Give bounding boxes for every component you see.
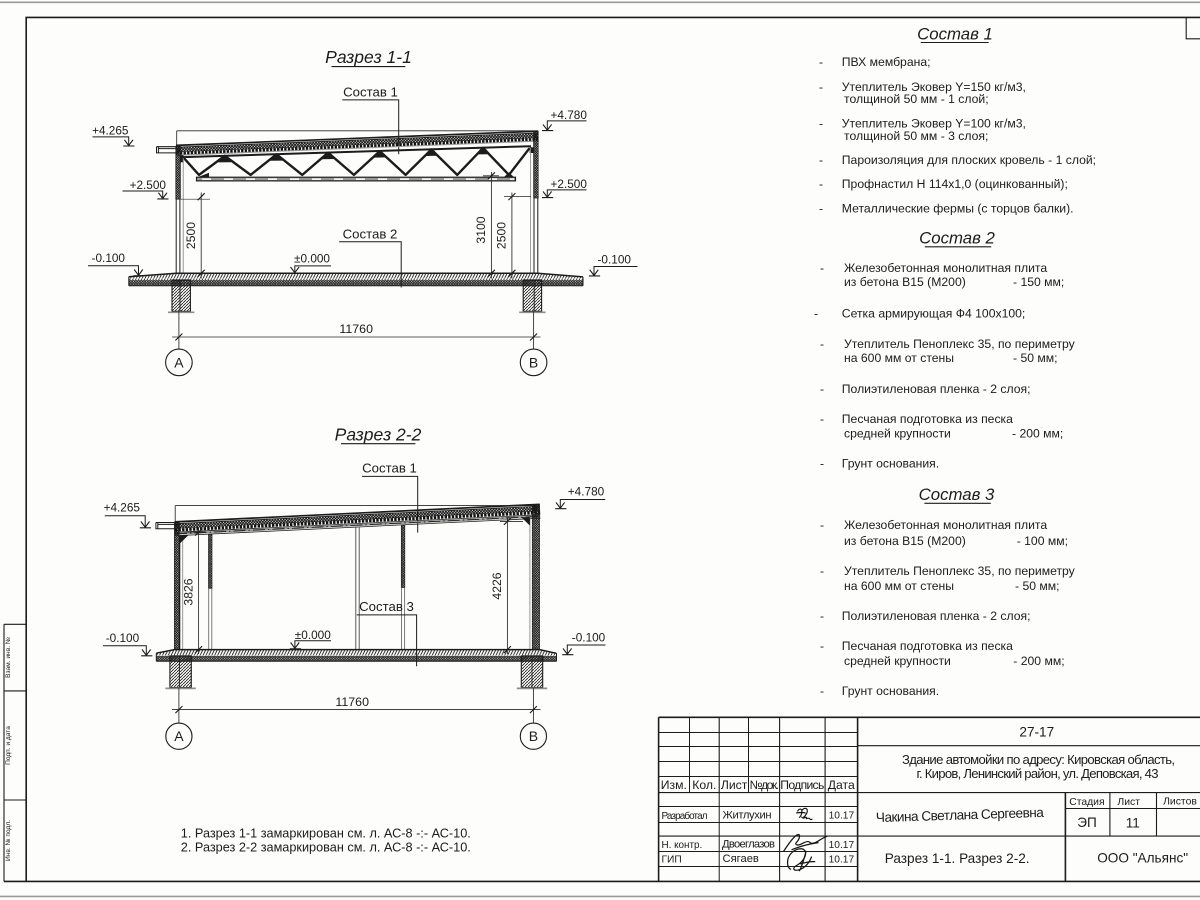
svg-text:- 200 мм;: - 200 мм; — [1013, 654, 1064, 668]
svg-text:Полиэтиленовая пленка - 2 слоя: Полиэтиленовая пленка - 2 слоя; — [842, 609, 1031, 623]
svg-text:В: В — [529, 354, 538, 370]
svg-text:-: - — [820, 337, 824, 351]
svg-text:Лист: Лист — [721, 778, 748, 792]
svg-text:Дата: Дата — [828, 778, 855, 792]
svg-text:2500: 2500 — [184, 222, 198, 249]
svg-text:г. Киров, Ленинский район, ул.: г. Киров, Ленинский район, ул. Деповская… — [917, 766, 1159, 781]
svg-text:Полиэтиленовая пленка - 2 слоя: Полиэтиленовая пленка - 2 слоя; — [842, 382, 1031, 396]
svg-text:Сягаев: Сягаев — [723, 853, 759, 865]
svg-text:11760: 11760 — [335, 695, 369, 709]
svg-text:Двоеглазов: Двоеглазов — [722, 839, 775, 851]
svg-text:Состав 3: Состав 3 — [919, 485, 995, 504]
svg-text:Утеплитель Пеноплекс 35, по пе: Утеплитель Пеноплекс 35, по периметру — [844, 337, 1076, 351]
svg-text:- 200 мм;: - 200 мм; — [1012, 427, 1063, 441]
svg-text:- 150 мм;: - 150 мм; — [1013, 275, 1064, 289]
svg-text:Грунт основания.: Грунт основания. — [842, 457, 939, 471]
svg-text:+4.780: +4.780 — [568, 485, 605, 499]
svg-text:средней крупности: средней крупности — [844, 427, 951, 441]
svg-text:2. Разрез 2-2 замаркирован см.: 2. Разрез 2-2 замаркирован см. л. АС-8 -… — [181, 840, 471, 854]
svg-text:Изм.: Изм. — [661, 778, 687, 792]
svg-text:11760: 11760 — [339, 322, 373, 336]
svg-text:-: - — [820, 684, 824, 698]
svg-text:- 50 мм;: - 50 мм; — [1015, 579, 1060, 593]
svg-text:-: - — [819, 80, 823, 94]
svg-text:толщиной 50 мм - 3 слоя;: толщиной 50 мм - 3 слоя; — [844, 129, 988, 143]
svg-text:Разработал: Разработал — [662, 811, 708, 822]
svg-text:-0.100: -0.100 — [598, 252, 632, 266]
svg-text:Разрез 1-1. Разрез 2-2.: Разрез 1-1. Разрез 2-2. — [885, 851, 1030, 866]
svg-text:Состав 2: Состав 2 — [919, 229, 995, 248]
svg-text:- 100 мм;: - 100 мм; — [1017, 534, 1068, 548]
svg-text:-: - — [820, 457, 824, 471]
svg-text:-: - — [819, 55, 823, 69]
svg-text:Н. контр.: Н. контр. — [662, 840, 703, 851]
svg-text:№док.: №док. — [750, 778, 780, 792]
svg-text:10.17: 10.17 — [829, 840, 855, 851]
svg-text:10.17: 10.17 — [829, 854, 855, 865]
svg-text:Грунт основания.: Грунт основания. — [842, 684, 939, 698]
svg-text:-: - — [820, 382, 824, 396]
svg-text:на 600 мм от стены: на 600 мм от стены — [844, 579, 954, 593]
svg-text:Металлические фермы (с торцов: Металлические фермы (с торцов балки). — [842, 202, 1074, 216]
svg-text:ГИП: ГИП — [662, 855, 682, 866]
svg-text:2500: 2500 — [495, 222, 509, 249]
svg-text:27-17: 27-17 — [1019, 724, 1054, 739]
svg-text:ПВХ мембрана;: ПВХ мембрана; — [842, 55, 931, 69]
svg-text:Состав 2: Состав 2 — [343, 227, 398, 242]
svg-text:-: - — [819, 177, 823, 191]
svg-text:Лист: Лист — [1117, 797, 1140, 808]
svg-text:-: - — [820, 609, 824, 623]
svg-text:из бетона В15 (М200): из бетона В15 (М200) — [844, 275, 966, 289]
svg-text:-0.100: -0.100 — [572, 631, 606, 645]
svg-text:Состав 1: Состав 1 — [917, 24, 993, 43]
svg-text:А: А — [174, 354, 184, 370]
svg-text:Подп. и дата: Подп. и дата — [5, 726, 12, 765]
svg-text:11: 11 — [1126, 816, 1140, 831]
svg-text:-: - — [820, 564, 824, 578]
svg-text:на 600 мм от стены: на 600 мм от стены — [844, 351, 954, 365]
svg-text:из бетона В15 (М200): из бетона В15 (М200) — [844, 534, 966, 548]
svg-text:Песчаная подготовка из песка: Песчаная подготовка из песка — [842, 639, 1013, 653]
svg-text:Подпись: Подпись — [780, 778, 824, 792]
svg-text:+2.500: +2.500 — [130, 178, 167, 192]
svg-text:Здание автомойки по адресу: Ки: Здание автомойки по адресу: Кировская об… — [902, 752, 1175, 767]
svg-text:Житлухин: Житлухин — [723, 810, 772, 822]
svg-text:-: - — [814, 307, 818, 321]
svg-text:средней крупности: средней крупности — [844, 654, 951, 668]
svg-text:+4.265: +4.265 — [92, 123, 129, 137]
svg-text:ЭП: ЭП — [1077, 815, 1097, 830]
svg-text:-: - — [819, 153, 823, 167]
svg-text:Кол.: Кол. — [692, 778, 716, 792]
svg-text:Разрез 1-1: Разрез 1-1 — [325, 47, 412, 67]
svg-text:В: В — [529, 728, 538, 744]
svg-text:толщиной 50 мм - 1 слой;: толщиной 50 мм - 1 слой; — [844, 92, 989, 106]
svg-text:-: - — [820, 639, 824, 653]
svg-text:-: - — [820, 518, 824, 532]
svg-text:±0.000: ±0.000 — [295, 628, 331, 642]
svg-text:1. Разрез 1-1 замаркирован см.: 1. Разрез 1-1 замаркирован см. л. АС-8 -… — [181, 826, 471, 840]
svg-text:-: - — [820, 261, 824, 275]
svg-text:+4.780: +4.780 — [551, 108, 588, 122]
svg-text:ООО "Альянс": ООО "Альянс" — [1097, 850, 1188, 865]
svg-text:-: - — [820, 412, 824, 426]
svg-text:-: - — [819, 117, 823, 131]
svg-text:Состав 1: Состав 1 — [362, 461, 417, 476]
svg-text:-0.100: -0.100 — [92, 251, 126, 265]
svg-text:Профнастил Н 114х1,0 (оцинкова: Профнастил Н 114х1,0 (оцинкованный); — [842, 177, 1068, 191]
svg-text:4226: 4226 — [490, 572, 504, 599]
svg-text:Пароизоляция для плоских крове: Пароизоляция для плоских кровель - 1 сло… — [842, 153, 1096, 167]
svg-text:±0.000: ±0.000 — [294, 251, 330, 265]
svg-text:+4.265: +4.265 — [104, 500, 141, 514]
svg-text:Листов: Листов — [1163, 797, 1197, 808]
svg-text:Состав 3: Состав 3 — [359, 599, 414, 614]
svg-text:- 50 мм;: - 50 мм; — [1013, 351, 1058, 365]
svg-text:3100: 3100 — [474, 216, 488, 243]
svg-text:Инв. № подл.: Инв. № подл. — [5, 820, 12, 861]
svg-text:Песчаная подготовка из песка: Песчаная подготовка из песка — [842, 412, 1013, 426]
svg-text:+2.500: +2.500 — [551, 177, 588, 191]
svg-text:10.17: 10.17 — [829, 811, 855, 822]
svg-text:Разрез 2-2: Разрез 2-2 — [335, 425, 422, 445]
svg-text:Железобетонная монолитная пли: Железобетонная монолитная плита — [844, 518, 1047, 532]
svg-text:А: А — [174, 728, 184, 744]
svg-text:Утеплитель Пеноплекс 35, по пе: Утеплитель Пеноплекс 35, по периметру — [844, 564, 1076, 578]
svg-text:-: - — [819, 202, 823, 216]
svg-text:3826: 3826 — [182, 578, 196, 605]
svg-text:Состав 1: Состав 1 — [343, 85, 398, 100]
svg-text:Взам. инв. №: Взам. инв. № — [5, 637, 12, 678]
svg-text:Сетка армирующая Ф4 100х100;: Сетка армирующая Ф4 100х100; — [842, 307, 1026, 321]
svg-text:Железобетонная монолитная пли: Железобетонная монолитная плита — [844, 261, 1047, 275]
svg-text:-0.100: -0.100 — [106, 631, 140, 645]
svg-text:Стадия: Стадия — [1069, 797, 1104, 808]
